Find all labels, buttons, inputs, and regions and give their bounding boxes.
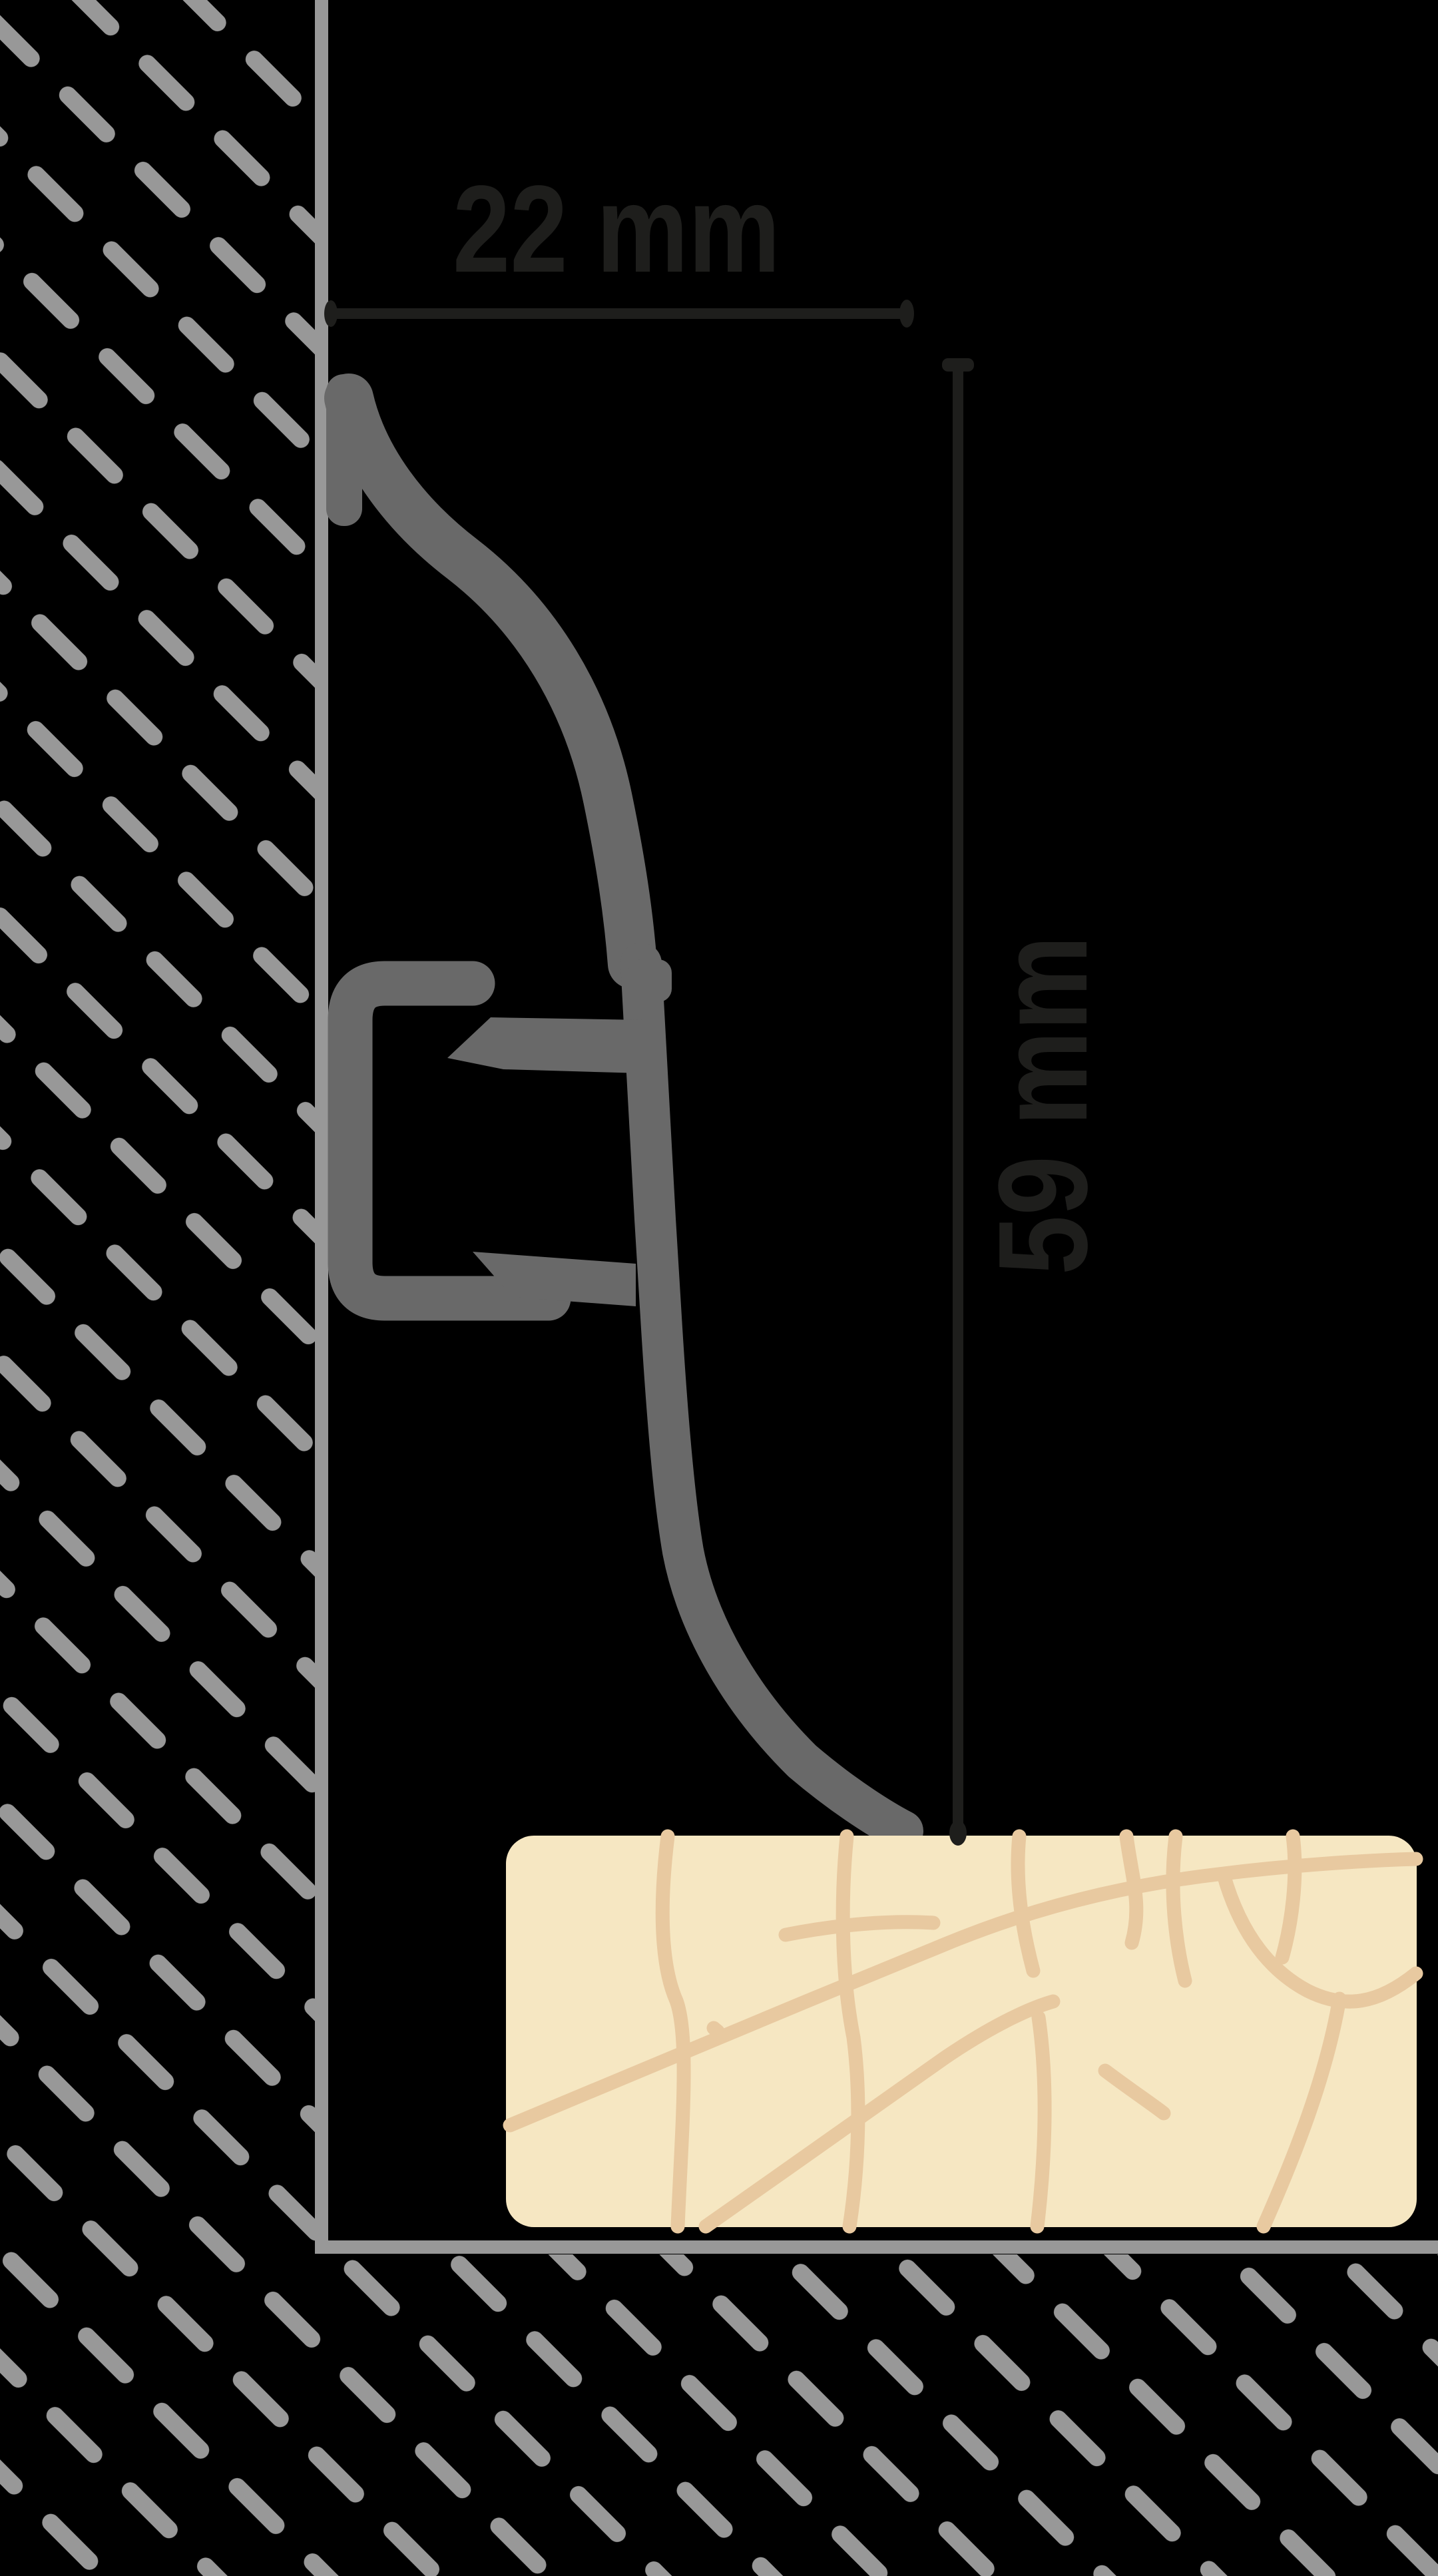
floor-surface-line	[315, 2240, 1438, 2254]
profile-face-and-foot	[641, 963, 903, 1831]
skirting-profile-strokes	[349, 398, 903, 1831]
profile-wall-anchor	[326, 374, 362, 526]
width-dimension-line	[328, 308, 913, 319]
grain-dot	[714, 2028, 718, 2031]
width-dimension-right-end-icon	[899, 300, 914, 328]
height-dimension-top-cap-icon	[942, 358, 974, 372]
height-dimension-bottom-end-icon	[949, 1820, 967, 1846]
profile-top-hook	[628, 959, 672, 1002]
width-dimension-left-end-icon	[324, 300, 338, 327]
profile-upper-lip	[349, 398, 632, 964]
wall-surface-line	[315, 0, 328, 2254]
width-dimension-label: 22 mm	[453, 160, 780, 298]
height-dimension-line	[953, 365, 963, 1834]
grain-line	[1037, 2017, 1045, 2226]
wall-section-hatch-left	[0, 0, 318, 2576]
profile-upper-barb	[447, 1017, 642, 1073]
floor-section-hatch-bottom	[318, 2254, 1438, 2576]
skirting-dimension-diagram: 22 mm 59 mm	[0, 0, 1438, 2576]
diagram-canvas: 22 mm 59 mm	[0, 0, 1438, 2576]
height-dimension-label: 59 mm	[973, 935, 1114, 1275]
floor-panel	[506, 1836, 1417, 2227]
